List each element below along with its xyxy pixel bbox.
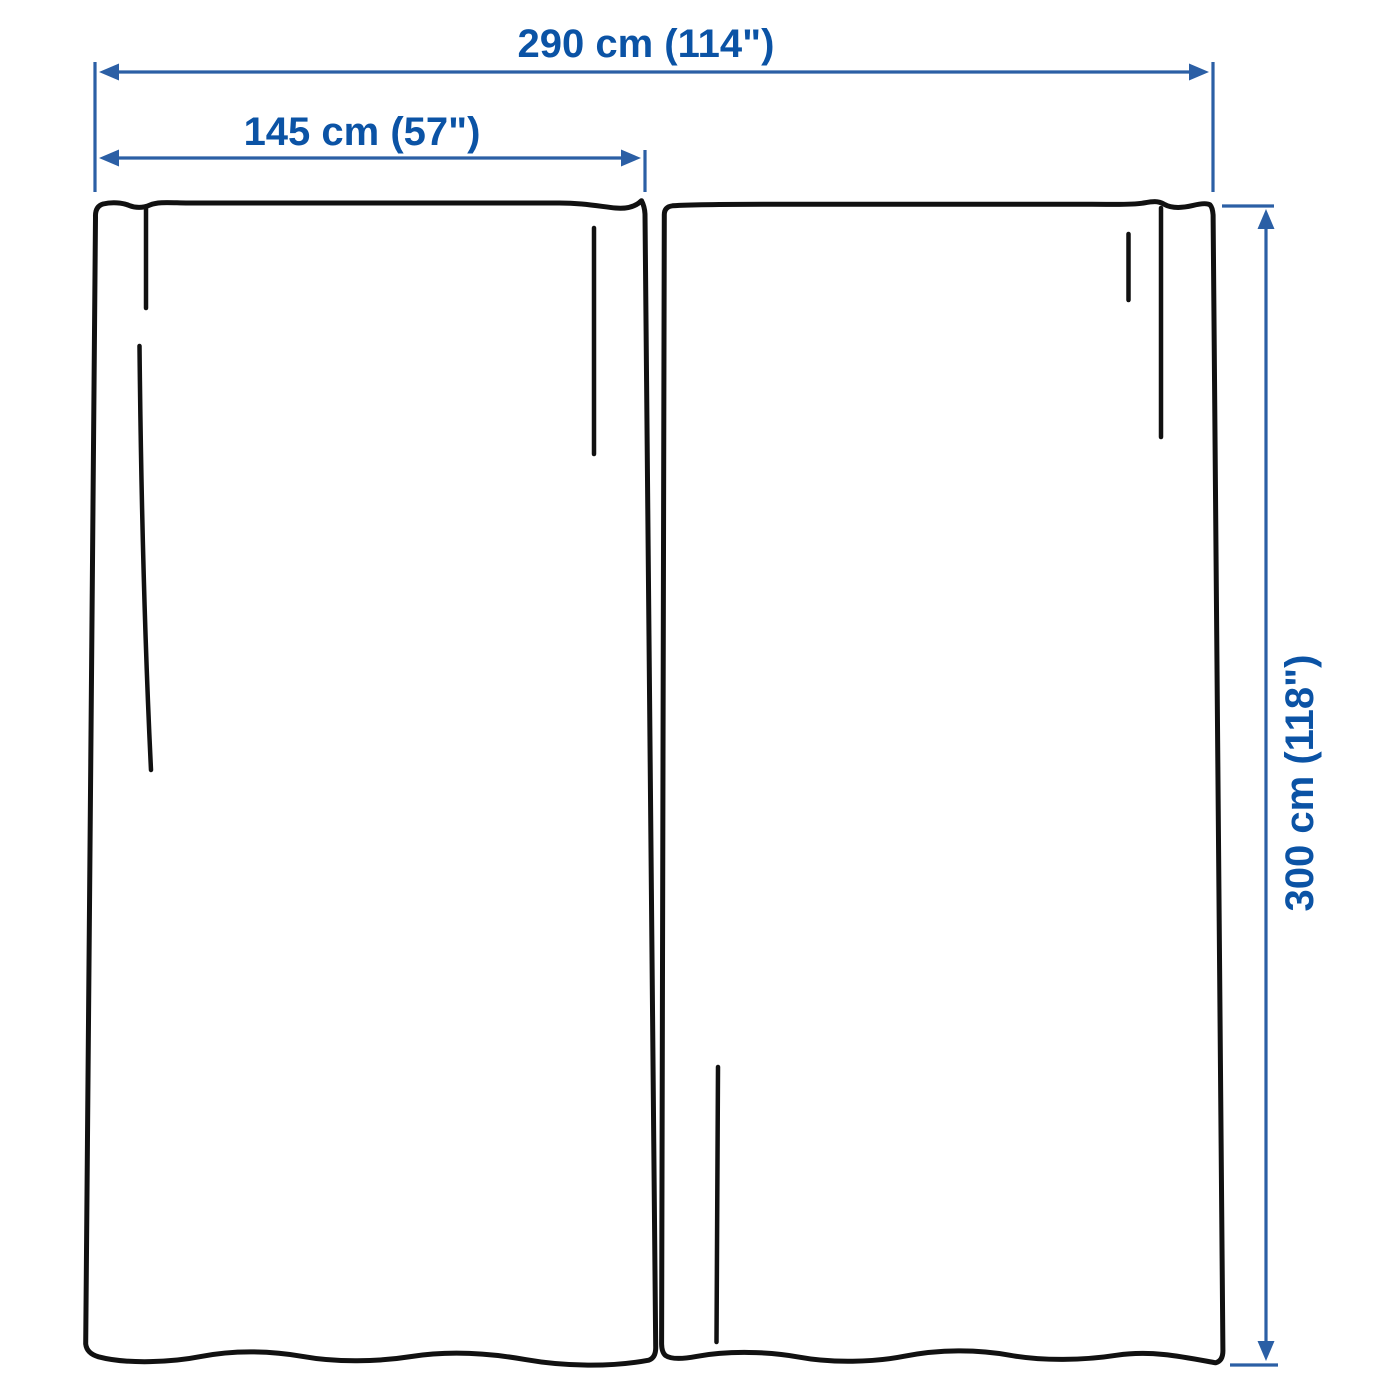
arrowhead-down-icon — [1258, 1341, 1275, 1361]
dimension-label-panel-height: 300 cm (118") — [1278, 655, 1322, 912]
arrowhead-up-icon — [1258, 209, 1275, 229]
right-curtain-panel — [662, 202, 1223, 1363]
right-panel-outline — [662, 202, 1223, 1363]
arrowhead-right-icon — [621, 150, 641, 167]
dimension-total-width: 290 cm (114") — [95, 22, 1213, 192]
dimension-panel-width: 145 cm (57") — [99, 110, 645, 192]
dimension-panel-height: 300 cm (118") — [1222, 206, 1322, 1365]
fold-line — [717, 1067, 719, 1342]
arrowhead-left-icon — [99, 150, 119, 167]
arrowhead-left-icon — [99, 64, 119, 81]
dimension-label-total-width: 290 cm (114") — [518, 22, 775, 66]
fold-line — [140, 346, 152, 770]
arrowhead-right-icon — [1189, 64, 1209, 81]
dimension-label-panel-width: 145 cm (57") — [244, 110, 481, 154]
left-panel-outline — [86, 201, 656, 1365]
left-curtain-panel — [86, 201, 656, 1365]
curtain-pair-dimension-diagram: 290 cm (114") 145 cm (57") 300 cm (118") — [0, 0, 1400, 1400]
